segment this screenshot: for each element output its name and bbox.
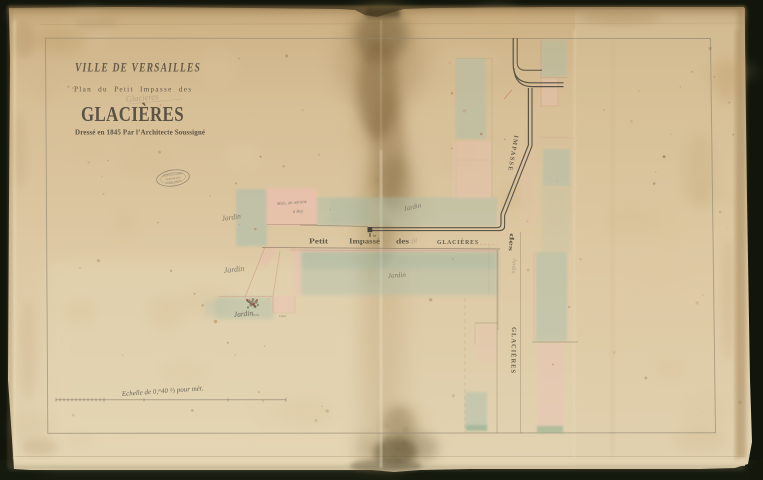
svg-text:des: des bbox=[507, 233, 515, 252]
svg-text:Puits: Puits bbox=[251, 313, 260, 317]
svg-text:Jardin: Jardin bbox=[233, 308, 253, 319]
svg-text:des: des bbox=[396, 238, 409, 246]
svg-text:Jardin: Jardin bbox=[388, 271, 407, 280]
svg-text:Cour: Cour bbox=[279, 314, 287, 318]
svg-text:GLACIÈRES: GLACIÈRES bbox=[81, 102, 184, 126]
svg-text:Dressé en 1845 Par l’Architect: Dressé en 1845 Par l’Architecte Soussign… bbox=[75, 129, 205, 137]
svg-text:GLACIÈRES: GLACIÈRES bbox=[437, 238, 479, 246]
svg-text:Impassé: Impassé bbox=[349, 238, 380, 246]
svg-text:GLACIÈRES: GLACIÈRES bbox=[509, 327, 518, 374]
svg-text:VILLE DE VERSAILLES: VILLE DE VERSAILLES bbox=[75, 61, 201, 75]
svg-text:Petit: Petit bbox=[309, 238, 329, 246]
svg-text:à Roy: à Roy bbox=[293, 208, 304, 214]
